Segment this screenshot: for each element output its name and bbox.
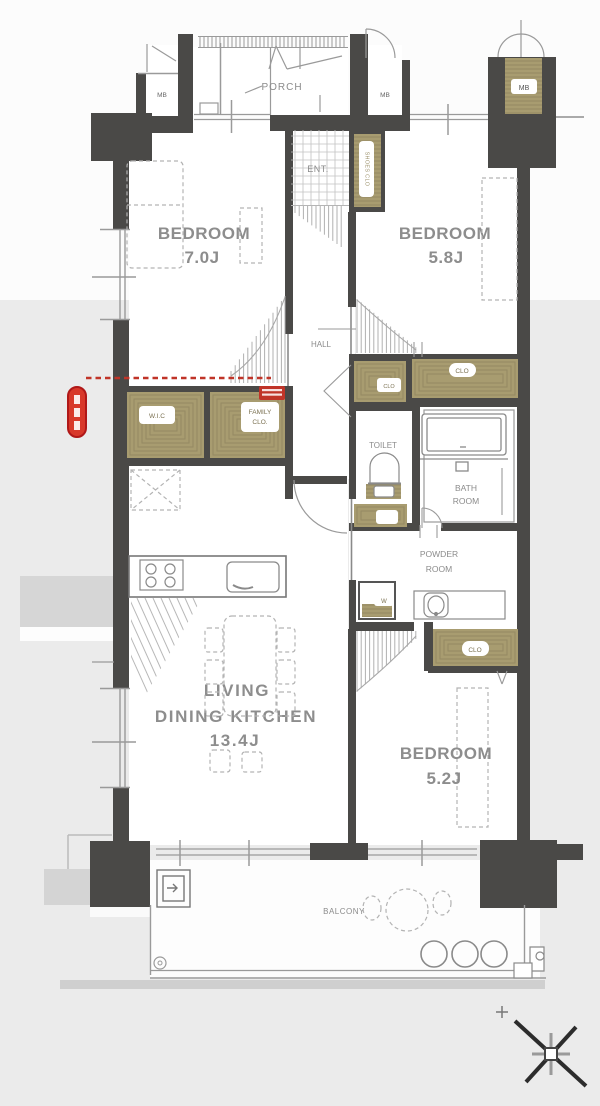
svg-text:CLO: CLO [455,368,468,375]
svg-text:MB: MB [157,92,167,99]
svg-text:13.4J: 13.4J [210,731,261,750]
svg-text:BATH: BATH [455,483,477,493]
svg-text:MB: MB [519,85,530,92]
svg-text:5.2J: 5.2J [426,769,461,788]
svg-text:TOILET: TOILET [369,441,397,450]
svg-text:BEDROOM: BEDROOM [399,224,491,243]
svg-text:5.8J: 5.8J [428,248,463,267]
svg-text:MB: MB [380,92,390,99]
svg-text:PORCH: PORCH [261,82,302,93]
svg-text:HALL: HALL [311,340,332,349]
svg-text:BEDROOM: BEDROOM [158,224,250,243]
svg-text:BEDROOM: BEDROOM [400,744,492,763]
svg-text:ROOM: ROOM [426,564,452,574]
svg-text:W: W [381,599,387,605]
svg-text:7.0J: 7.0J [184,248,219,267]
svg-text:BALCONY: BALCONY [323,907,365,916]
svg-text:ROOM: ROOM [453,496,479,506]
svg-text:CLO.: CLO. [252,419,267,426]
svg-text:CLO: CLO [383,384,395,390]
svg-text:FAMILY: FAMILY [249,409,272,416]
svg-text:SHOES CLO: SHOES CLO [364,152,370,187]
svg-text:POWDER: POWDER [420,549,458,559]
svg-text:CLO: CLO [468,647,481,654]
svg-text:ENT.: ENT. [307,164,329,174]
svg-text:W.I.C: W.I.C [149,413,165,420]
